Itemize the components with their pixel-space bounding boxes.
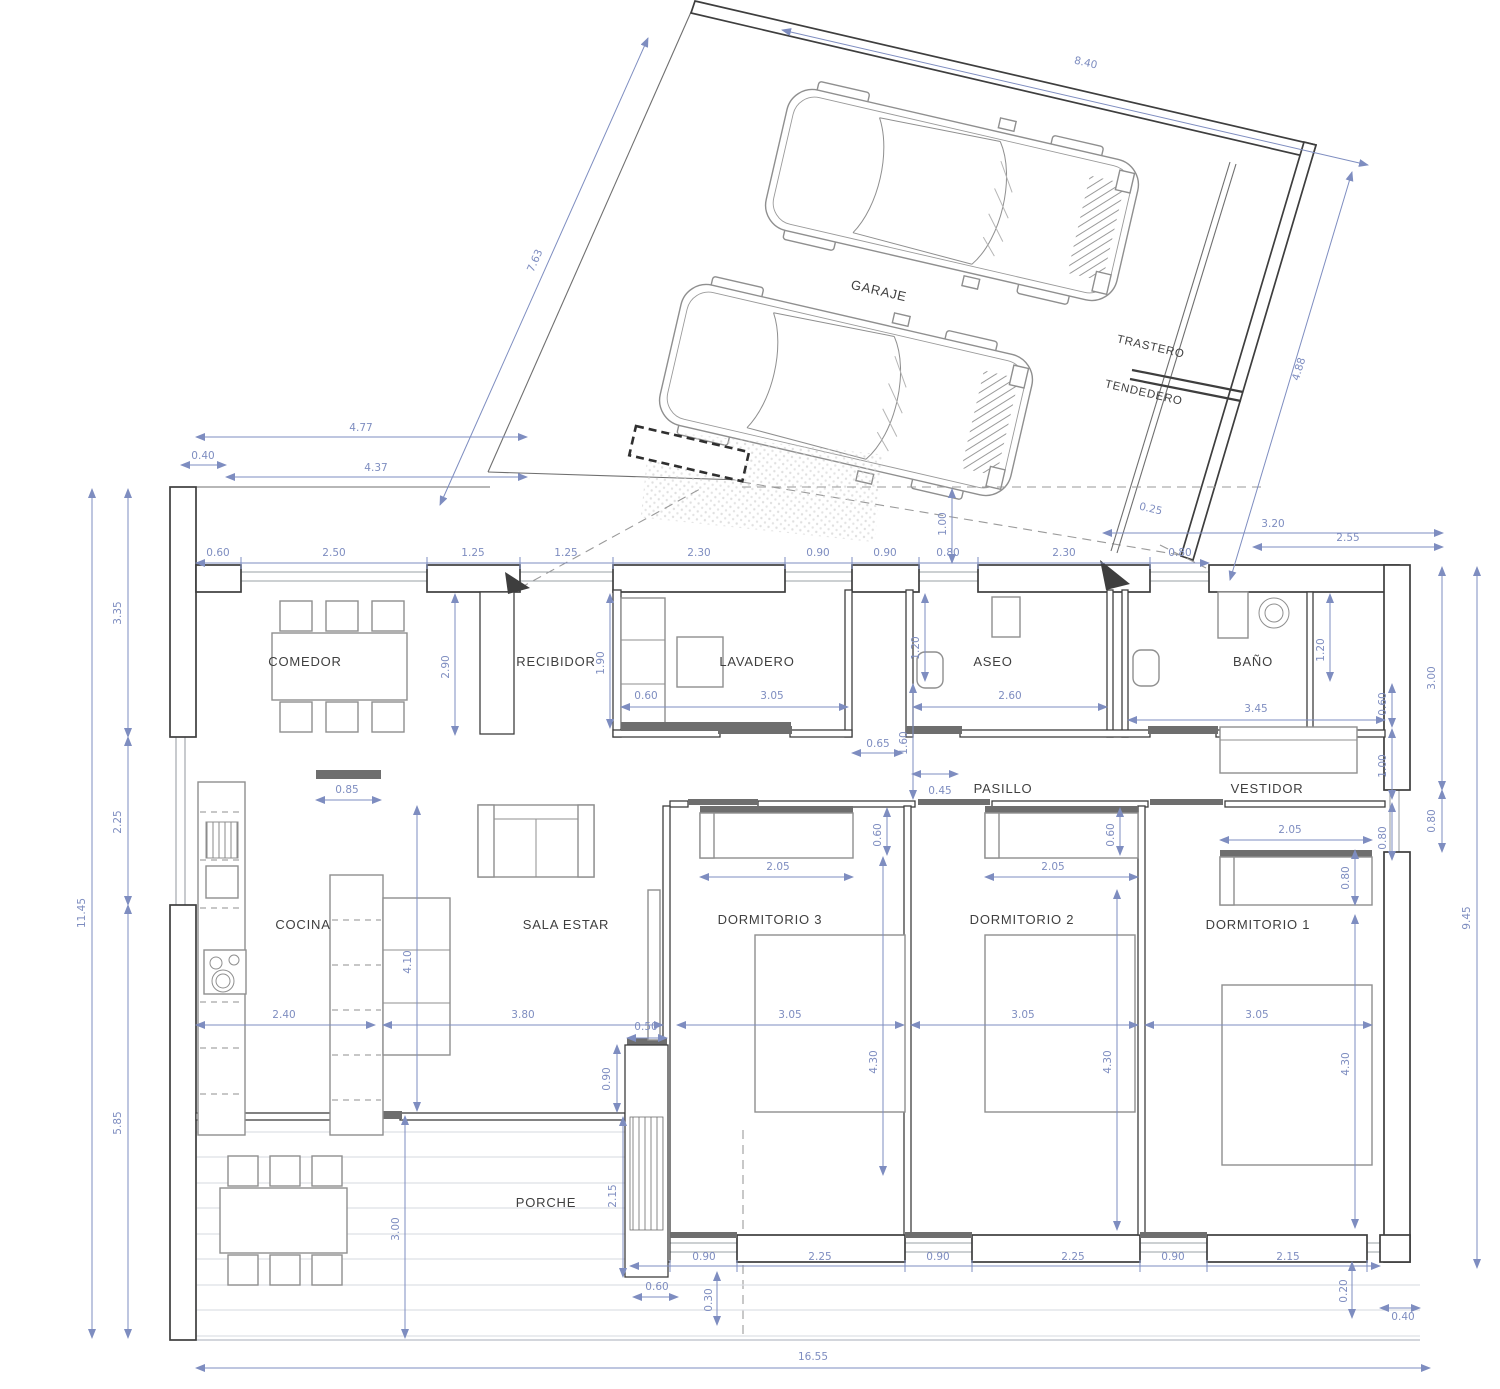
dimension-label: 1.60	[898, 731, 910, 754]
garage-right-wall	[1181, 142, 1316, 560]
dimension-label: 7.63	[525, 248, 545, 274]
dimension-label: 0.80	[1377, 826, 1389, 849]
bedroom-closets	[700, 806, 1372, 905]
porche-table	[220, 1188, 347, 1253]
dimension: 2.50	[322, 547, 345, 559]
dimension-label: 8.40	[1073, 55, 1098, 72]
dimension-label: 0.60	[872, 823, 884, 846]
dimension-label: 3.80	[511, 1009, 534, 1021]
room-label-comedor: COMEDOR	[268, 654, 342, 669]
dorm3-terrace-door	[670, 1232, 737, 1238]
bano-fixtures	[1133, 592, 1289, 686]
dimension-label: 4.10	[402, 950, 414, 973]
dimension: 0.30	[703, 1272, 717, 1325]
bed-dorm2	[985, 935, 1135, 1112]
page-edge	[0, 1381, 1500, 1389]
dimension-label: 0.40	[1391, 1311, 1414, 1323]
aseo-sink	[992, 597, 1020, 637]
dimension-label: 2.55	[1336, 532, 1359, 544]
dimension-label: 0.60	[206, 547, 229, 559]
dimension-label: 4.30	[1340, 1052, 1352, 1075]
room-label-bano: BAÑO	[1233, 654, 1273, 669]
dimension: 0.85	[316, 784, 381, 800]
dimension-label: 5.85	[112, 1111, 124, 1134]
dimension: 2.25	[1061, 1251, 1084, 1263]
dimension: 0.45	[912, 774, 958, 797]
dimension-label: 4.88	[1290, 356, 1308, 382]
dimension-label: 2.25	[112, 810, 124, 833]
dimension-label: 0.90	[806, 547, 829, 559]
dimension-label: 3.20	[1261, 518, 1284, 530]
dimension-label: 16.55	[798, 1351, 828, 1363]
dimension-label: 4.30	[868, 1050, 880, 1073]
dimension-label: 2.25	[808, 1251, 831, 1263]
dimension-label: 0.60	[645, 1281, 668, 1293]
dimension: 16.55	[196, 1351, 1430, 1368]
dimension-label: 1.00	[1377, 754, 1389, 777]
vestidor-closet	[1220, 727, 1357, 773]
dimension-label: 0.80	[1426, 809, 1438, 832]
dimension: 3.00	[390, 1116, 405, 1338]
dimension-label: 2.25	[1061, 1251, 1084, 1263]
dimension-label: 4.77	[349, 422, 372, 434]
beds	[755, 935, 1372, 1165]
room-label-dormitorio3: DORMITORIO 3	[718, 912, 823, 927]
dimension-label: 2.30	[687, 547, 710, 559]
dimension-label: 0.80	[1168, 547, 1191, 559]
dorm1-door	[1150, 799, 1223, 805]
dimension: 0.90	[601, 1045, 617, 1112]
dimension-label: 1.25	[554, 547, 577, 559]
dimension-label: 3.05	[778, 1009, 801, 1021]
dimension-label: 3.00	[1426, 666, 1438, 689]
dimension: 2.90	[440, 594, 455, 735]
dorm2-door	[918, 799, 990, 805]
recibidor-partition	[480, 592, 514, 734]
room-label-dormitorio2: DORMITORIO 2	[970, 912, 1075, 927]
room-label-garaje: GARAJE	[850, 277, 909, 304]
room-label-vestidor: VESTIDOR	[1231, 781, 1304, 796]
dimension: 11.45	[76, 489, 92, 1338]
dimension: 4.37	[226, 462, 527, 477]
dimension-label: 2.60	[998, 690, 1021, 702]
dimension: 2.30	[687, 547, 710, 559]
bano-door	[1148, 726, 1218, 734]
dimension-label: 0.20	[1338, 1279, 1350, 1302]
dimension-label: 0.65	[866, 738, 889, 750]
dimension-label: 0.40	[191, 450, 214, 462]
dimension: 3.45	[1128, 703, 1385, 720]
dimension: 1.20	[1315, 594, 1330, 681]
dimension: 0.60	[206, 547, 229, 559]
dimension-label: 3.05	[1011, 1009, 1034, 1021]
dimension: 1.90	[595, 594, 610, 728]
dimension: 0.60	[634, 690, 657, 702]
dimension: 3.00	[1426, 567, 1442, 790]
dorm2-dorm1-wall	[1138, 806, 1145, 1235]
oven	[206, 866, 238, 898]
dimension: 0.90	[1161, 1251, 1184, 1263]
dimension: 0.80	[936, 547, 959, 559]
dimension-label: 2.15	[1276, 1251, 1299, 1263]
dimension-label: 0.90	[601, 1067, 613, 1090]
dimension: 3.20	[1103, 518, 1443, 533]
dimension-label: 1.20	[1315, 638, 1327, 661]
dimension-label: 0.50	[634, 1021, 657, 1033]
dimension: 9.45	[1461, 567, 1477, 1268]
car-top	[757, 71, 1146, 320]
dimension: 7.63	[440, 38, 648, 505]
room-label-sala-estar: SALA ESTAR	[523, 917, 610, 932]
dimension: 0.90	[692, 1251, 715, 1263]
dimension-label: 1.25	[461, 547, 484, 559]
bano-toilet	[1133, 650, 1159, 686]
dimension-label: 0.80	[1340, 866, 1352, 889]
dimension: 1.25	[461, 547, 484, 559]
room-label-trastero: TRASTERO	[1116, 333, 1186, 360]
aseo-fixtures	[917, 597, 1020, 688]
room-label-porche: PORCHE	[516, 1195, 576, 1210]
dimension: 0.60	[633, 1281, 678, 1297]
room-label-lavadero: LAVADERO	[719, 654, 794, 669]
dimension: 0.80	[1168, 547, 1191, 559]
dimension-label: 2.15	[607, 1184, 619, 1207]
dimension-label: 0.25	[1138, 501, 1163, 518]
dimension: 2.05	[1220, 824, 1372, 840]
room-label-aseo: ASEO	[973, 654, 1012, 669]
dimension-label: 0.90	[926, 1251, 949, 1263]
dimension-label: 0.85	[335, 784, 358, 796]
dimension: 0.65	[852, 738, 903, 753]
dimension: 2.55	[1253, 532, 1443, 547]
dimension: 4.77	[196, 422, 527, 437]
dorm2-terrace-door	[905, 1232, 972, 1238]
dimension-label: 11.45	[76, 898, 88, 928]
dimension: 0.90	[806, 547, 829, 559]
dimension: 2.05	[985, 861, 1138, 877]
dorm1-terrace-door	[1140, 1232, 1207, 1238]
room-label-cocina: COCINA	[275, 917, 330, 932]
dimension: 5.85	[112, 905, 128, 1338]
dimension-label: 1.90	[595, 651, 607, 674]
aseo-door	[906, 726, 962, 734]
dimension-label: 4.37	[364, 462, 387, 474]
dimension: 0.80	[1426, 790, 1442, 852]
room-label-recibidor: RECIBIDOR	[516, 654, 595, 669]
dimension: 2.30	[1052, 547, 1075, 559]
room-label-dormitorio1: DORMITORIO 1	[1206, 917, 1311, 932]
bano-basin	[1259, 598, 1289, 628]
dimension-label: 3.00	[390, 1217, 402, 1240]
dimension: 2.15	[1276, 1251, 1299, 1263]
dimension-label: 0.60	[1105, 823, 1117, 846]
dimension-label: 4.30	[1102, 1050, 1114, 1073]
vent-hood	[206, 822, 238, 858]
dimension: 0.50	[627, 1021, 667, 1038]
dimension: 0.25	[1138, 501, 1163, 518]
dimension-label: 0.60	[634, 690, 657, 702]
dimension-label: 0.90	[873, 547, 896, 559]
dimension-label: 3.05	[760, 690, 783, 702]
dimension: 2.15	[607, 1117, 623, 1277]
dimension: 0.90	[926, 1251, 949, 1263]
dimension-line	[440, 38, 648, 505]
dimension-label: 2.05	[1278, 824, 1301, 836]
room-label-pasillo: PASILLO	[974, 781, 1033, 796]
dimension: 1.25	[554, 547, 577, 559]
garage-block	[488, 1, 1316, 560]
dimension: 2.05	[700, 861, 853, 877]
dimension-label: 0.90	[692, 1251, 715, 1263]
floor-plan-sheet: GARAJE TRASTERO TENDEDERO COMEDOR RECIBI…	[0, 0, 1500, 1389]
kitchen-cabinets	[330, 875, 383, 1135]
dimension: 0.90	[873, 547, 896, 559]
dimension-label: 3.35	[112, 601, 124, 624]
dimension-label: 0.90	[1161, 1251, 1184, 1263]
dimension: 3.35	[112, 489, 128, 737]
dimension-label: 0.80	[936, 547, 959, 559]
dimension: 2.60	[913, 690, 1107, 707]
dimension-label: 1.00	[937, 512, 949, 535]
dimension-label: 2.90	[440, 655, 452, 678]
dimension: 0.60	[872, 808, 887, 855]
dimension-label: 3.05	[1245, 1009, 1268, 1021]
bano-vanity	[1218, 592, 1248, 638]
dimension-label: 0.45	[928, 785, 951, 797]
dimension-label: 2.50	[322, 547, 345, 559]
dimension: 2.25	[808, 1251, 831, 1263]
dimension-label: 2.05	[766, 861, 789, 873]
fireplace-column	[625, 1038, 668, 1277]
dimension-label: 2.30	[1052, 547, 1075, 559]
dimension-label: 9.45	[1461, 906, 1473, 929]
porche-furniture	[220, 1156, 347, 1285]
dimension: 2.25	[112, 737, 128, 905]
dimension-label: 1.20	[910, 636, 922, 659]
dimension-label: 0.30	[703, 1288, 715, 1311]
dimension-label: 2.40	[272, 1009, 295, 1021]
dimension-label: 3.45	[1244, 703, 1267, 715]
washer	[677, 637, 723, 687]
floor-plan-svg: GARAJE TRASTERO TENDEDERO COMEDOR RECIBI…	[0, 0, 1500, 1389]
dimension-label: 2.05	[1041, 861, 1064, 873]
tv-unit	[648, 890, 660, 1040]
dimension: 0.40	[181, 450, 226, 465]
dimension-label: 0.60	[1377, 692, 1389, 715]
dorm3-door	[688, 799, 758, 805]
